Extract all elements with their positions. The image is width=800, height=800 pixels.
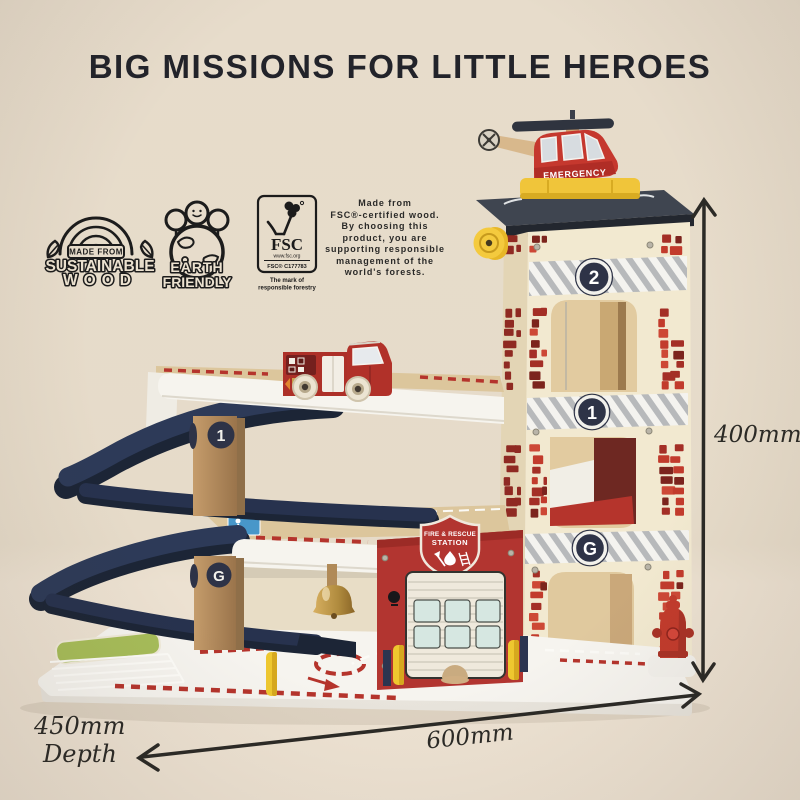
garage-door bbox=[406, 572, 505, 684]
column-level-1: 1 bbox=[189, 416, 245, 516]
toy-fire-station-photo: 2 1 G bbox=[0, 0, 800, 800]
tail-rotor-icon bbox=[479, 130, 536, 157]
svg-text:2: 2 bbox=[589, 268, 600, 289]
tower-floor-2-badge: 2 bbox=[576, 259, 613, 296]
lift-knob bbox=[474, 227, 509, 260]
helicopter: EMERGENCY bbox=[479, 110, 640, 199]
depth-word: Depth bbox=[43, 740, 125, 768]
height-dimension-label: 400mm bbox=[714, 422, 800, 448]
height-dimension-arrow bbox=[693, 200, 715, 680]
svg-text:1: 1 bbox=[587, 403, 597, 423]
station-badge-line2: STATION bbox=[432, 538, 468, 547]
product-infographic: { "page": { "title": "BIG MISSIONS FOR L… bbox=[0, 0, 800, 800]
station-badge-line1: FIRE & RESCUE bbox=[424, 531, 476, 538]
column-g-label: G bbox=[213, 568, 225, 585]
column-level-g: G bbox=[190, 556, 244, 650]
helicopter-skids bbox=[520, 178, 640, 199]
column-1-label: 1 bbox=[217, 428, 226, 445]
tower-floor-1-badge: 1 bbox=[574, 394, 610, 430]
main-rotor bbox=[512, 118, 614, 132]
svg-text:G: G bbox=[583, 539, 597, 559]
depth-value: 450mm bbox=[34, 712, 125, 740]
fire-truck bbox=[283, 341, 392, 401]
station-shield-badge: FIRE & RESCUE STATION bbox=[421, 516, 479, 577]
base-platform bbox=[44, 632, 688, 712]
tower-floor-g-badge: G bbox=[572, 530, 608, 566]
station-front: FIRE & RESCUE STATION bbox=[377, 516, 528, 690]
depth-dimension-label: 450mm Depth bbox=[34, 712, 125, 768]
yellow-peg bbox=[266, 652, 277, 696]
